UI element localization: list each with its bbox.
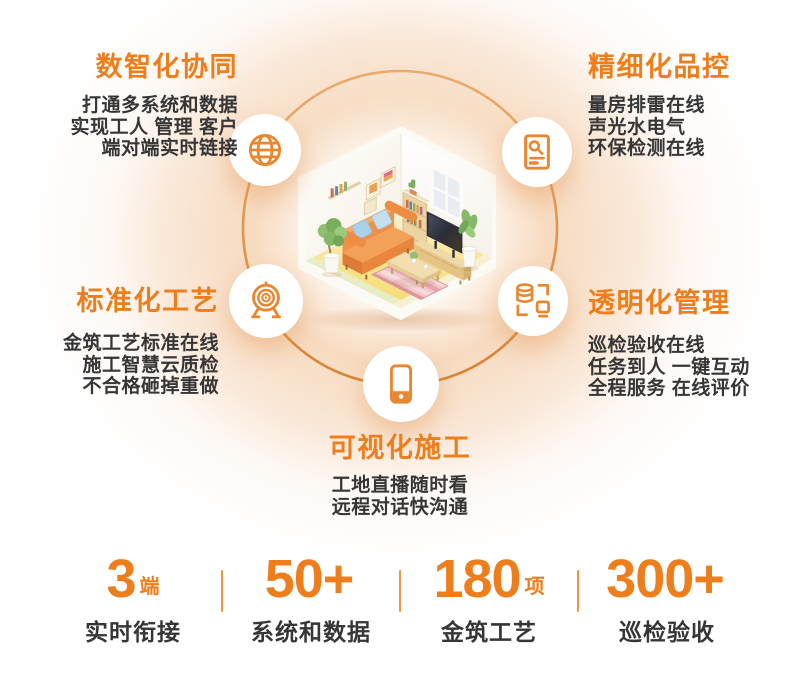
feature-line: 全程服务 在线评价 [588, 378, 798, 400]
stat-value-row: 300+ [579, 552, 755, 604]
feature-title: 标准化工艺 [0, 286, 219, 316]
stat-item: 300+ 巡检验收 [579, 552, 755, 647]
feature-line: 打通多系统和数据 [0, 95, 238, 117]
infographic-canvas: 数智化协同 打通多系统和数据 实现工人 管理 客户 端对端实时链接 精细化品控 … [0, 0, 800, 691]
room-illustration [281, 124, 519, 334]
feature-line: 端对端实时链接 [0, 138, 238, 160]
stat-value: 300+ [606, 554, 724, 604]
feature-line: 实现工人 管理 客户 [0, 117, 238, 139]
feature-line: 环保检测在线 [588, 138, 788, 160]
stat-label: 系统和数据 [223, 613, 399, 647]
feature-line: 量房排雷在线 [588, 95, 788, 117]
feature-title: 精细化品控 [588, 52, 788, 82]
stat-label: 巡检验收 [579, 613, 755, 647]
database-sync-icon [498, 266, 568, 336]
stat-item: 3 端 实时衔接 [45, 552, 221, 647]
stat-label: 实时衔接 [45, 613, 221, 647]
stat-item: 50+ 系统和数据 [223, 552, 399, 647]
feature-digital-collaboration: 数智化协同 打通多系统和数据 实现工人 管理 客户 端对端实时链接 [0, 52, 238, 160]
stat-value: 180 [433, 554, 520, 604]
feature-quality-control: 精细化品控 量房排雷在线 声光水电气 环保检测在线 [588, 52, 788, 160]
stat-value-row: 3 端 [45, 552, 221, 604]
smartphone-icon [363, 346, 439, 422]
feature-description: 金筑工艺标准在线 施工智慧云质检 不合格砸掉重做 [0, 333, 219, 398]
target-icon [229, 264, 303, 338]
stat-value-row: 50+ [223, 552, 399, 604]
feature-transparent-management: 透明化管理 巡检验收在线 任务到人 一键互动 全程服务 在线评价 [588, 288, 798, 400]
feature-title: 可视化施工 [270, 433, 530, 463]
feature-description: 打通多系统和数据 实现工人 管理 客户 端对端实时链接 [0, 95, 238, 160]
feature-line: 巡检验收在线 [588, 335, 798, 357]
feature-line: 任务到人 一键互动 [588, 357, 798, 379]
feature-description: 量房排雷在线 声光水电气 环保检测在线 [588, 95, 788, 160]
stat-value-row: 180 项 [401, 552, 577, 604]
stat-label: 金筑工艺 [401, 613, 577, 647]
feature-description: 工地直播随时看 远程对话快沟通 [270, 475, 530, 518]
feature-visual-construction: 可视化施工 工地直播随时看 远程对话快沟通 [270, 433, 530, 518]
feature-line: 金筑工艺标准在线 [0, 333, 219, 355]
feature-line: 不合格砸掉重做 [0, 376, 219, 398]
stat-unit: 项 [525, 570, 545, 604]
stat-value: 3 [106, 554, 135, 604]
feature-description: 巡检验收在线 任务到人 一键互动 全程服务 在线评价 [588, 335, 798, 400]
feature-title: 数智化协同 [0, 52, 238, 82]
stat-item: 180 项 金筑工艺 [401, 552, 577, 647]
feature-title: 透明化管理 [588, 288, 798, 318]
stat-value: 50+ [265, 554, 354, 604]
feature-line: 工地直播随时看 [270, 475, 530, 497]
feature-line: 施工智慧云质检 [0, 355, 219, 377]
feature-line: 远程对话快沟通 [270, 497, 530, 519]
feature-standardized-craft: 标准化工艺 金筑工艺标准在线 施工智慧云质检 不合格砸掉重做 [0, 286, 219, 398]
stats-bar: 3 端 实时衔接 50+ 系统和数据 180 项 金筑工艺 300+ [0, 552, 800, 647]
stat-unit: 端 [140, 570, 160, 604]
inspection-report-icon [502, 117, 572, 187]
feature-line: 声光水电气 [588, 117, 788, 139]
globe-icon [229, 114, 301, 186]
